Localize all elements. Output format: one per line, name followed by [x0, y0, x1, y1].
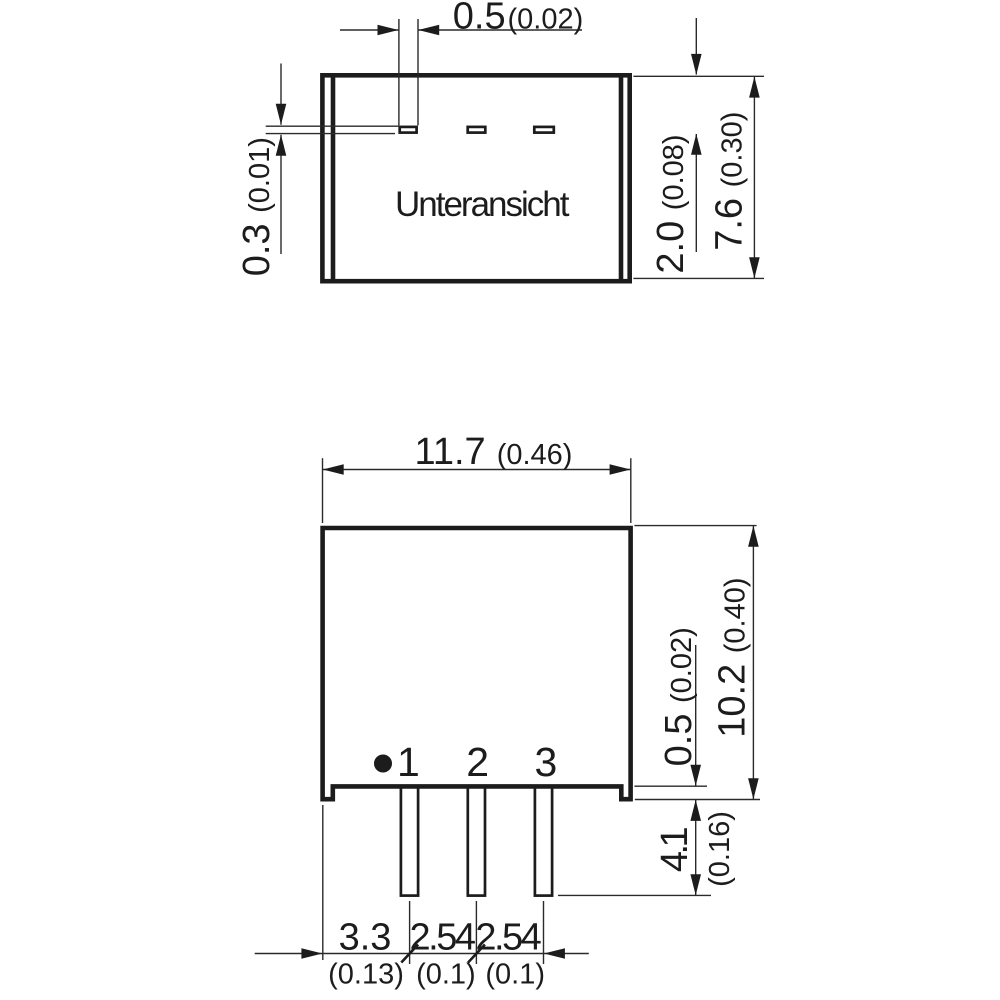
- svg-text:(0.02): (0.02): [508, 4, 584, 36]
- svg-text:(0.46): (0.46): [497, 439, 573, 471]
- svg-text:0.5: 0.5: [453, 0, 506, 38]
- svg-text:Unteransicht: Unteransicht: [395, 185, 570, 224]
- svg-text:3.3: 3.3: [339, 917, 392, 959]
- svg-text:(0.1): (0.1): [485, 959, 545, 991]
- svg-text:3: 3: [534, 739, 557, 785]
- svg-text:(0.1): (0.1): [416, 959, 476, 991]
- svg-text:2.54: 2.54: [475, 917, 541, 959]
- svg-text:4.1: 4.1: [654, 827, 696, 872]
- svg-text:2: 2: [466, 739, 489, 785]
- svg-text:11.7: 11.7: [415, 431, 486, 473]
- svg-text:2.54: 2.54: [410, 917, 476, 959]
- svg-text:(0.16): (0.16): [704, 811, 736, 887]
- svg-text:(0.13): (0.13): [328, 959, 404, 991]
- svg-text:1: 1: [397, 739, 420, 785]
